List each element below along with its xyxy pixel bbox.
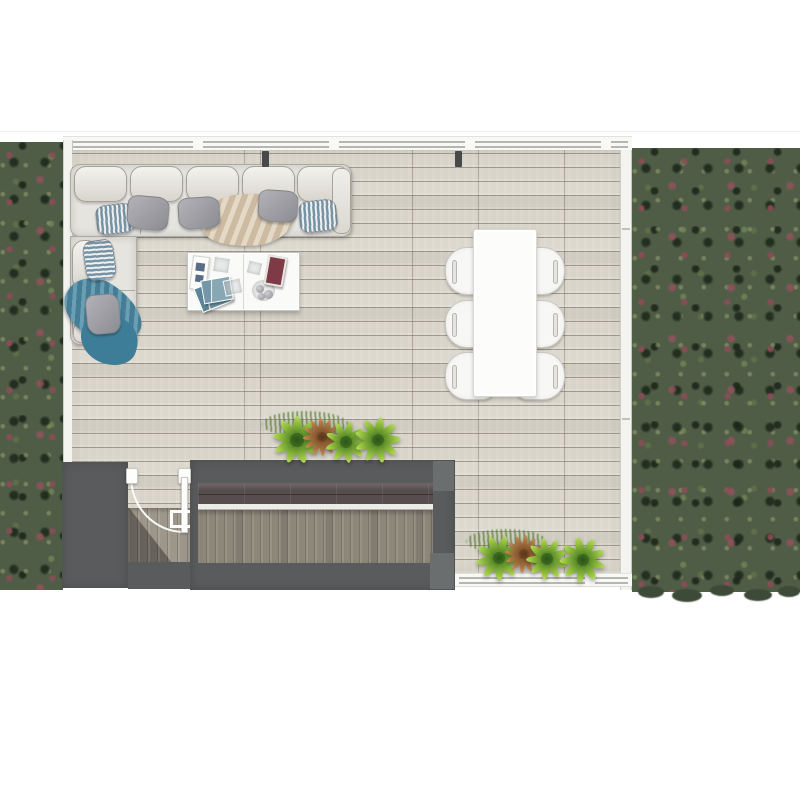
glass-wall-joint <box>622 228 630 230</box>
chair-handle-slot <box>553 365 558 389</box>
sofa-pillow <box>297 198 338 234</box>
plant-center <box>290 433 303 446</box>
lawn-edge-tuft <box>710 585 734 596</box>
chair-handle-slot <box>553 313 558 337</box>
door-handle <box>170 510 190 528</box>
floor-plan-scene <box>0 0 800 800</box>
track-rail <box>67 141 628 143</box>
book-photo <box>195 263 205 272</box>
chair-handle-slot <box>452 365 457 389</box>
sofa-pillow <box>84 293 121 336</box>
step-top <box>433 461 454 491</box>
decor-ball <box>264 290 273 299</box>
chair-handle-slot <box>452 260 457 284</box>
coffee-table-seam <box>243 254 244 309</box>
dining-table <box>473 229 537 397</box>
lawn-edge-tuft <box>778 586 800 597</box>
lawn-edge-tuft <box>672 589 702 602</box>
lawn-edge-tuft <box>744 589 772 601</box>
roof-post <box>455 151 462 167</box>
bar-counter <box>198 483 433 504</box>
plant-center <box>541 553 553 565</box>
lawn-edge-tuft <box>638 586 664 598</box>
sofa-back-cushion <box>74 166 127 202</box>
roof-edge-line <box>0 131 800 132</box>
roof-post <box>262 151 269 167</box>
chair-handle-slot <box>452 313 457 337</box>
lawn-left <box>0 142 63 590</box>
wood-deck <box>198 510 433 563</box>
sofa-pillow <box>81 238 117 282</box>
track-rail <box>67 146 628 148</box>
counter-block <box>190 460 455 590</box>
plant-center <box>340 436 352 448</box>
sofa-pillow <box>126 194 171 232</box>
glass-wall-right <box>620 150 632 590</box>
stair-landing-dark <box>128 562 190 589</box>
potted-plant-green <box>560 537 606 583</box>
door-jamb-left <box>126 468 138 484</box>
glass-wall-joint <box>622 418 630 420</box>
decor-ball <box>258 293 265 300</box>
sofa-pillow <box>257 189 299 224</box>
chair-handle-slot <box>553 260 558 284</box>
potted-plant-green <box>355 417 401 463</box>
decor-ball <box>256 285 264 293</box>
glass-coaster <box>212 256 231 274</box>
stair-wall-left <box>62 462 128 588</box>
lawn-right <box>632 148 800 592</box>
sofa-pillow <box>177 196 221 231</box>
step-bottom <box>430 553 454 589</box>
